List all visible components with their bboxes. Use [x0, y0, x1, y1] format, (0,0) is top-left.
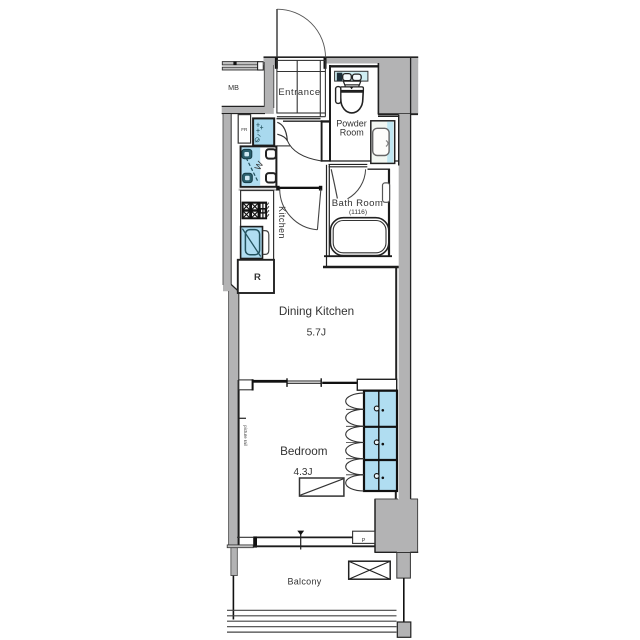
svg-text:Room: Room [340, 128, 364, 138]
svg-text:P: P [362, 538, 366, 544]
svg-text:4.3J: 4.3J [294, 467, 313, 478]
svg-text:(1116): (1116) [349, 209, 367, 216]
svg-text:Bedroom: Bedroom [280, 445, 327, 458]
svg-text:Dining Kitchen: Dining Kitchen [279, 305, 354, 318]
svg-text:R: R [254, 272, 261, 283]
svg-text:FR: FR [241, 127, 248, 132]
svg-text:Balcony: Balcony [287, 577, 321, 587]
svg-text:picture rail: picture rail [243, 425, 248, 445]
svg-text:Kitchen: Kitchen [277, 206, 287, 239]
svg-text:MB: MB [228, 83, 239, 92]
svg-text:Bath Room: Bath Room [332, 198, 384, 209]
svg-text:5.7J: 5.7J [307, 328, 326, 339]
svg-text:Entrance: Entrance [278, 86, 320, 97]
